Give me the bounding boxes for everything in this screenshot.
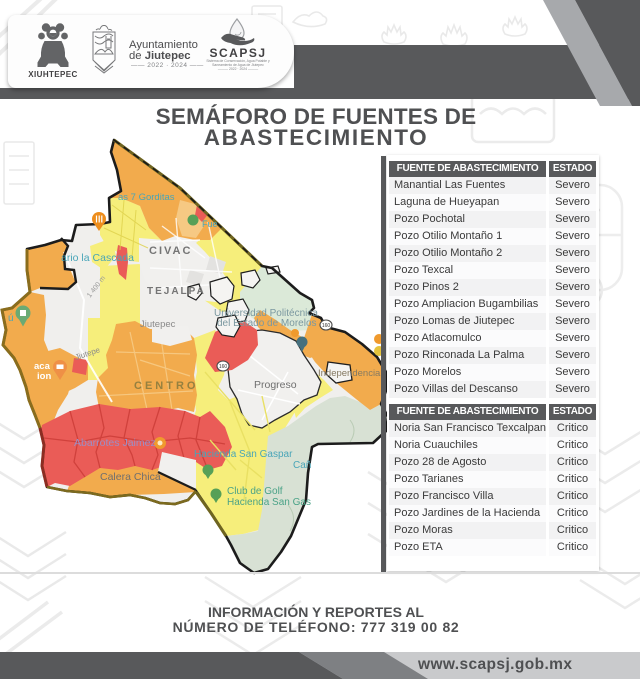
svg-text:160: 160 [322,323,331,329]
svg-text:Independencia: Independencia [318,368,381,379]
svg-text:Hacienda San Gaspar: Hacienda San Gaspar [194,449,293,460]
svg-text:CENTRO: CENTRO [134,380,198,392]
svg-text:Cañ: Cañ [293,460,311,471]
svg-text:TEJALPA: TEJALPA [147,286,206,297]
svg-text:Abarrotes Jaimez: Abarrotes Jaimez [74,437,156,449]
svg-text:ú: ú [8,313,14,324]
svg-text:ario la Cascada: ario la Cascada [61,252,134,264]
svg-text:as 7 Gorditas: as 7 Gorditas [118,192,175,203]
svg-text:Fue: Fue [202,219,218,229]
svg-text:ion: ion [37,371,51,382]
svg-text:Jiutepec: Jiutepec [140,319,176,330]
svg-text:Progreso: Progreso [254,379,297,391]
svg-text:CIVAC: CIVAC [149,245,192,257]
svg-text:Club de Golf: Club de Golf [227,486,283,497]
svg-text:Hacienda San Gas: Hacienda San Gas [227,497,311,508]
svg-text:160: 160 [219,364,228,370]
svg-text:Calera Chica: Calera Chica [100,471,161,483]
svg-text:del Estado de Morelos: del Estado de Morelos [217,318,317,329]
